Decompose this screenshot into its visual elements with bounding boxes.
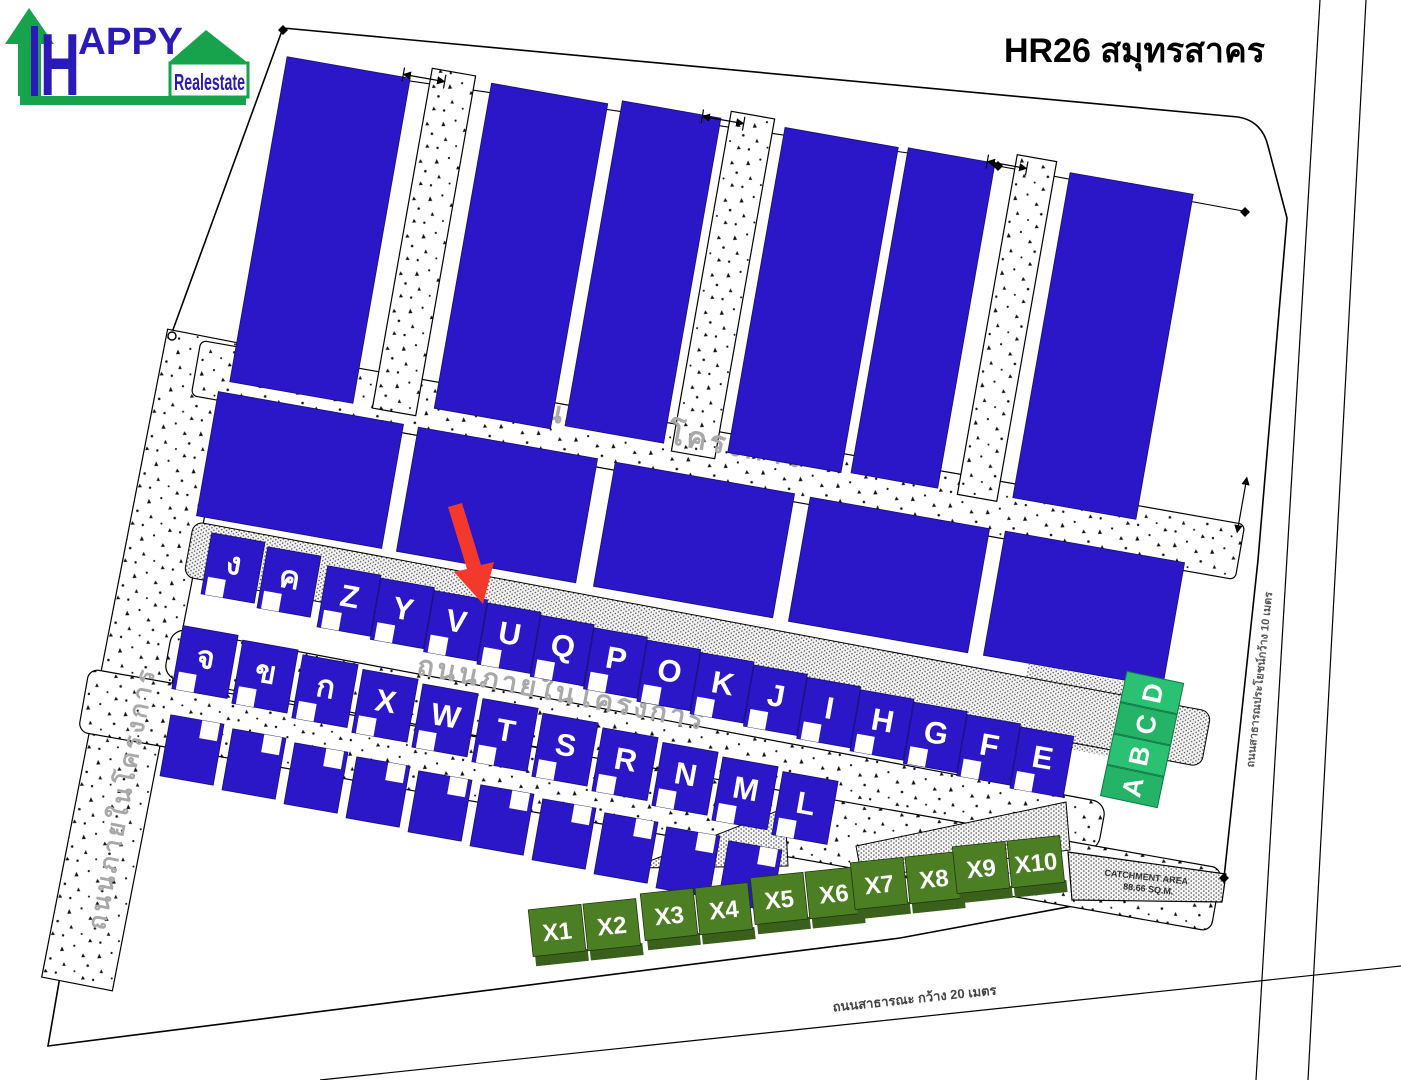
plot-G: G bbox=[903, 702, 967, 772]
plot-ค: ค bbox=[257, 547, 321, 617]
plot-label: X2 bbox=[596, 912, 628, 942]
plot-N: N bbox=[652, 742, 718, 815]
plot-S: S bbox=[532, 713, 598, 786]
page-title: HR26 สมุทรสาคร bbox=[1004, 32, 1266, 72]
logo-word-appy: APPY bbox=[78, 21, 183, 63]
x-plot-pair: X7X8 bbox=[850, 851, 965, 919]
road-label-bottom-public: ถนนสาธารณะ กว้าง 20 เมตร bbox=[832, 982, 997, 1014]
plot-label: X5 bbox=[763, 885, 795, 915]
survey-circle bbox=[168, 332, 176, 340]
x-plot-pair: X9X10 bbox=[952, 835, 1067, 903]
plot-label: X3 bbox=[653, 901, 685, 931]
plot-unlabeled bbox=[284, 743, 348, 813]
plot-unlabeled bbox=[594, 813, 658, 883]
plot-unlabeled bbox=[408, 771, 472, 841]
site-plan-page: ถนนภายในโครงการ ถนนภายในโครงการ ถนนภายใน… bbox=[0, 0, 1401, 1080]
plot-K: K bbox=[690, 653, 754, 723]
bottom-road-line bbox=[320, 966, 1401, 1080]
survey-diamond bbox=[278, 25, 288, 35]
plot-ข: ข bbox=[232, 640, 298, 713]
plot-U: U bbox=[477, 603, 541, 673]
plot-R: R bbox=[592, 728, 658, 801]
plot-label: X1 bbox=[541, 917, 573, 947]
plot-label: X6 bbox=[818, 880, 850, 910]
plot-T: T bbox=[472, 699, 538, 772]
plot-ก: ก bbox=[292, 655, 358, 728]
logo-letter-h: H bbox=[40, 15, 80, 114]
x-plot-pair: X3X4 bbox=[640, 882, 755, 950]
plot-H: H bbox=[850, 690, 914, 760]
plot-unlabeled bbox=[160, 715, 224, 785]
logo-blue-bar bbox=[31, 26, 38, 96]
plot-P: P bbox=[584, 628, 648, 698]
plot-unlabeled bbox=[222, 729, 286, 799]
plot-label: X9 bbox=[965, 854, 997, 884]
plot-unlabeled bbox=[532, 799, 596, 869]
plot-J: J bbox=[743, 665, 807, 735]
plot-label: X10 bbox=[1013, 848, 1058, 879]
plot-Q: Q bbox=[530, 615, 594, 685]
road-label-right-public: ถนนสาธารณประโยชน์กว้าง 10 เมตร bbox=[1243, 591, 1275, 768]
plot-Y: Y bbox=[370, 578, 434, 648]
site-plan-svg: ถนนภายในโครงการ ถนนภายในโครงการ ถนนภายใน… bbox=[0, 0, 1401, 1080]
plot-ง: ง bbox=[201, 533, 265, 603]
plot-E: E bbox=[1010, 727, 1074, 797]
plot-V: V bbox=[424, 591, 488, 661]
logo: H APPY Realestate bbox=[5, 8, 248, 114]
plot-M: M bbox=[712, 757, 778, 830]
plot-L: L bbox=[772, 772, 838, 845]
x-plot-pair: X1X2 bbox=[528, 898, 643, 966]
plot-label: X7 bbox=[863, 870, 895, 900]
plot-label: X4 bbox=[708, 896, 741, 926]
plot-unlabeled bbox=[470, 785, 534, 855]
plot-unlabeled bbox=[346, 757, 410, 827]
plot-label: X8 bbox=[918, 865, 950, 895]
plot-X: X bbox=[352, 669, 418, 742]
plot-I: I bbox=[797, 677, 861, 747]
plot-จ: จ bbox=[172, 626, 238, 699]
plot-Z: Z bbox=[317, 566, 381, 636]
plot-O: O bbox=[637, 640, 701, 710]
survey-diamond bbox=[1240, 207, 1250, 217]
x-plot-pair: X5X6 bbox=[750, 866, 865, 934]
right-road-line-2 bbox=[1308, 0, 1366, 1080]
plot-W: W bbox=[412, 684, 478, 757]
logo-word-realestate: Realestate bbox=[174, 69, 245, 95]
right-road-line-1 bbox=[1256, 0, 1320, 1080]
plot-F: F bbox=[957, 715, 1021, 785]
